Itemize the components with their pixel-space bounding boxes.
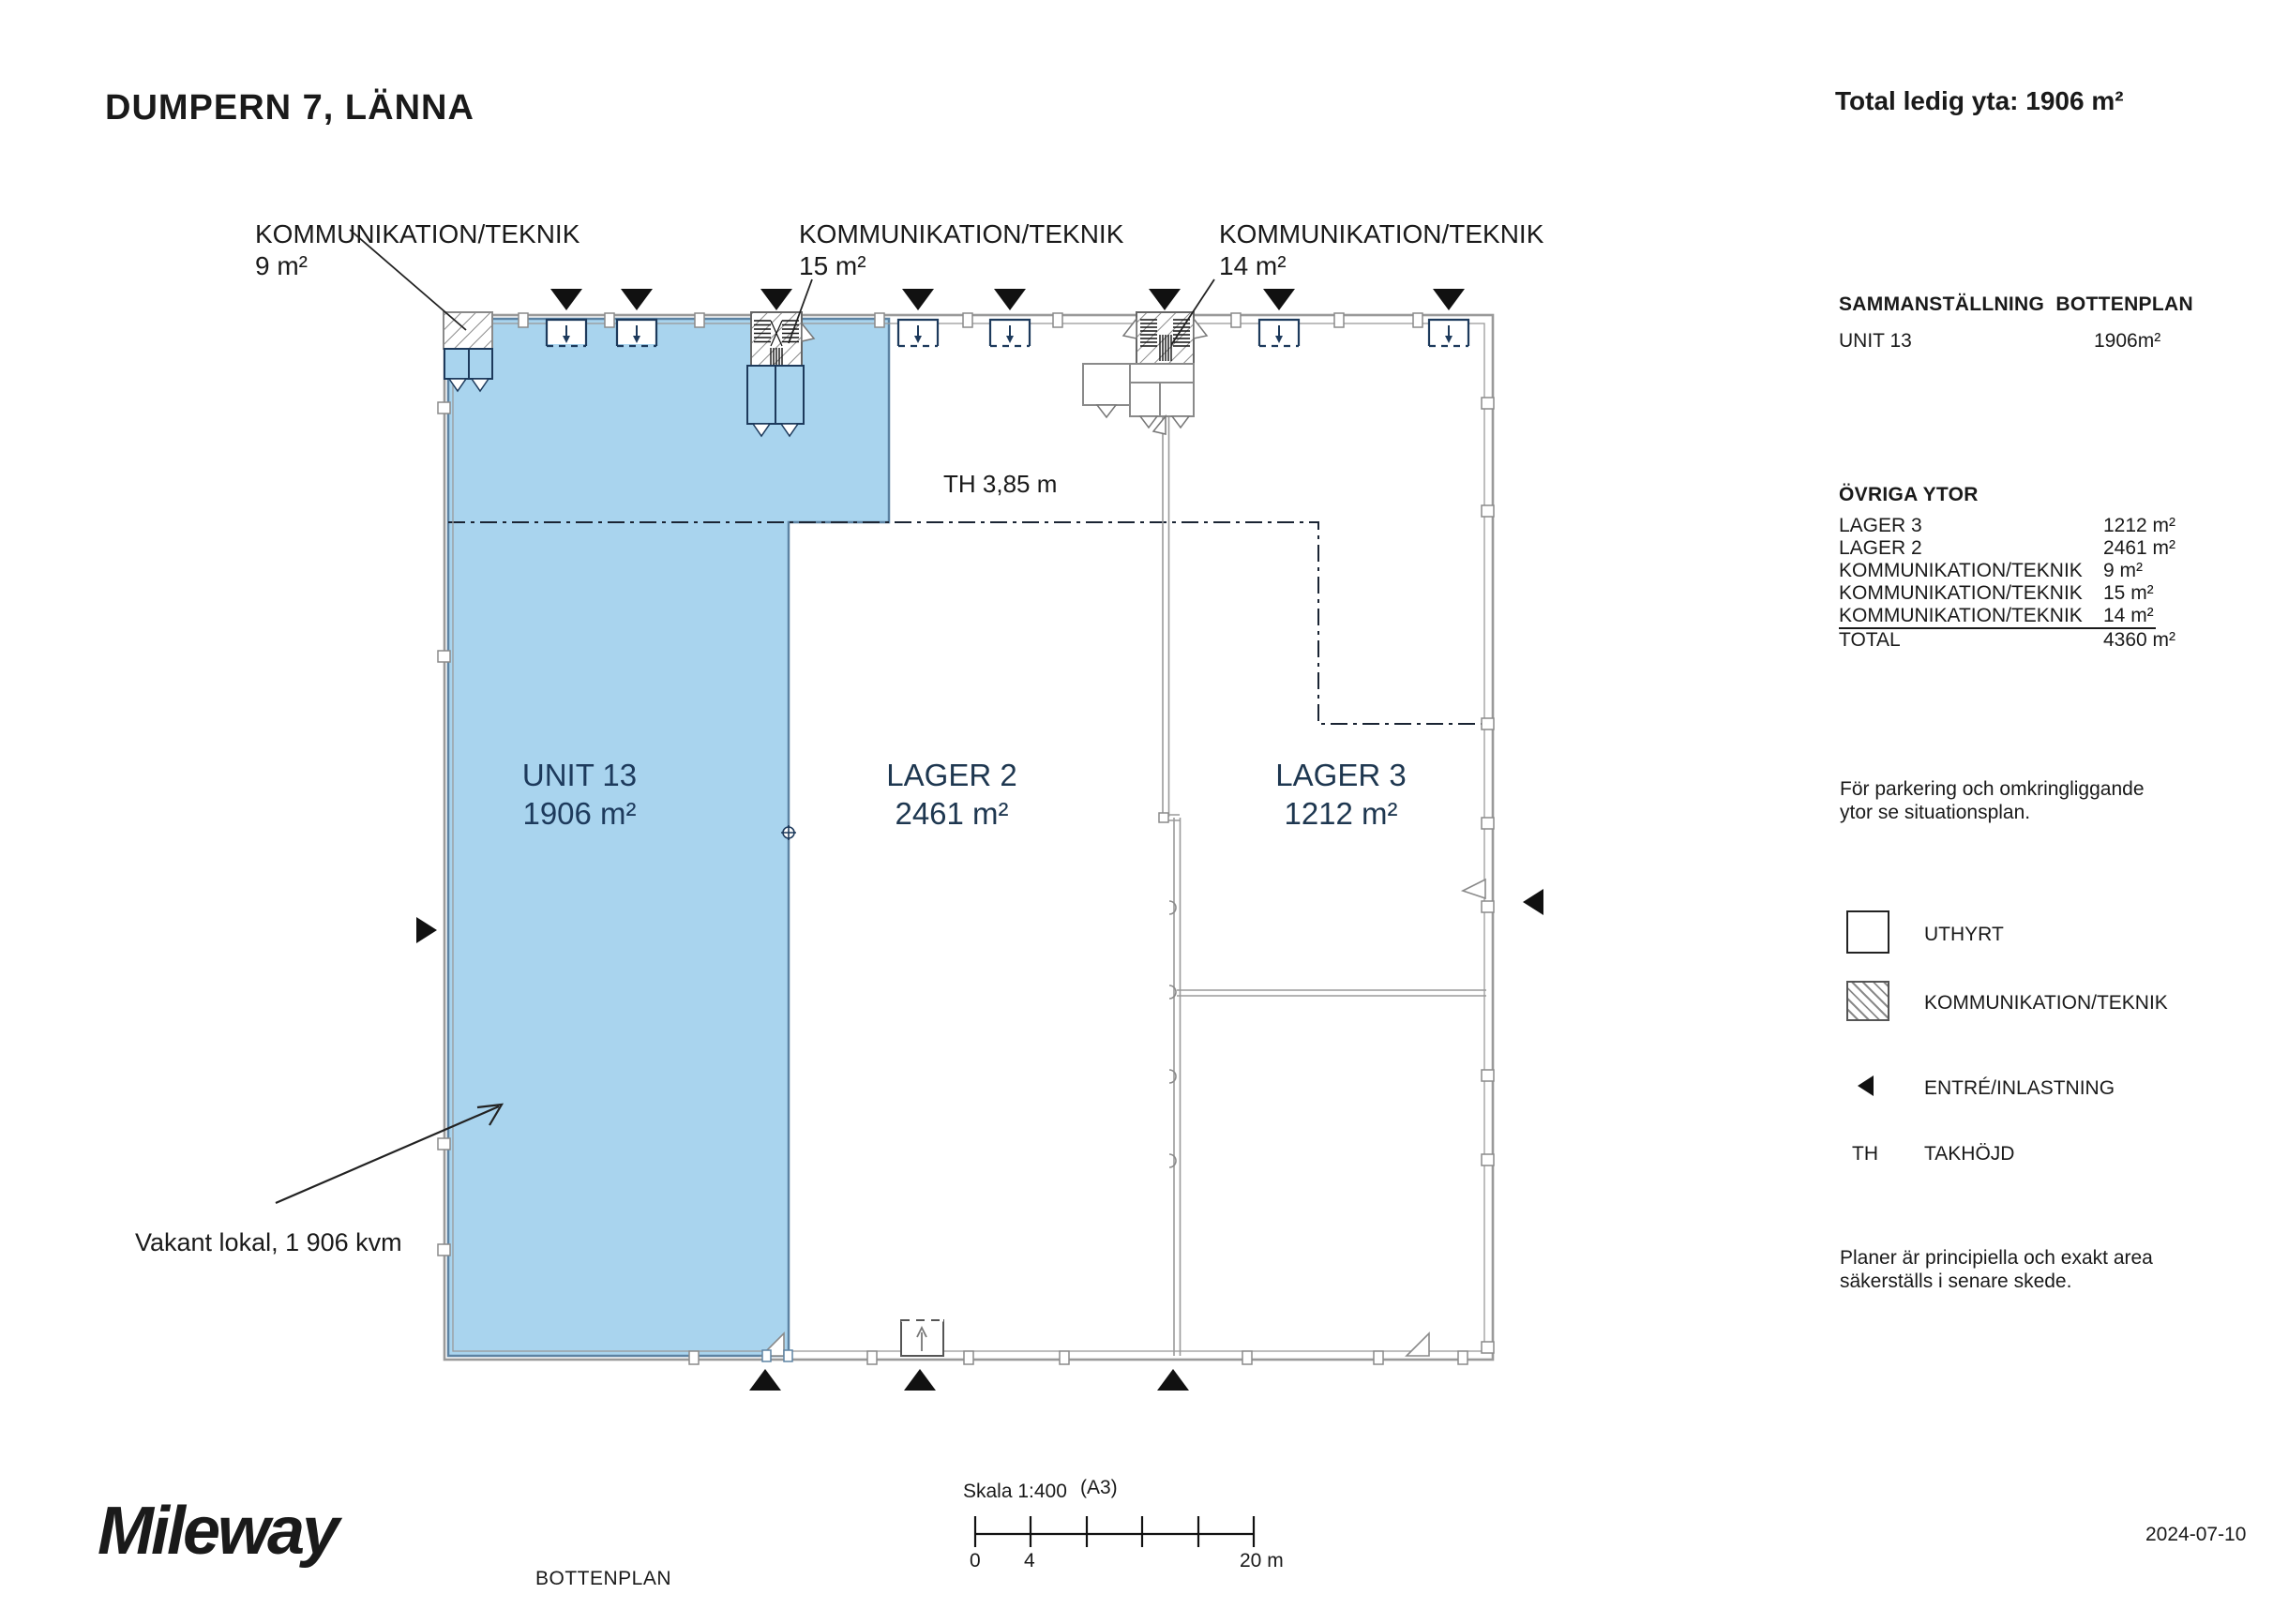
scale-tick-20: 20 m bbox=[1240, 1550, 1284, 1572]
annotation-teknik-14: KOMMUNIKATION/TEKNIK 14 m² bbox=[1219, 218, 1543, 282]
row-label: KOMMUNIKATION/TEKNIK bbox=[1839, 560, 2083, 582]
row-label: KOMMUNIKATION/TEKNIK bbox=[1839, 605, 2083, 627]
row-value: 1212 m² bbox=[2103, 515, 2175, 537]
scale-tick-4: 4 bbox=[1024, 1550, 1035, 1572]
mileway-logo: Mileway bbox=[98, 1493, 337, 1570]
lager2-area-text: 2461 m² bbox=[886, 794, 1016, 833]
row-value: 4360 m² bbox=[2103, 629, 2175, 652]
lager2-label: LAGER 2 2461 m² bbox=[886, 756, 1016, 833]
annotation-teknik-9-name: KOMMUNIKATION/TEKNIK bbox=[255, 218, 580, 250]
teknik-9m2-block bbox=[444, 312, 492, 391]
parking-note: För parkering och omkringliggande ytor s… bbox=[1840, 777, 2182, 824]
door-swings bbox=[761, 880, 1485, 1356]
annotation-teknik-15-area: 15 m² bbox=[799, 250, 1123, 282]
annotation-teknik-9: KOMMUNIKATION/TEKNIK 9 m² bbox=[255, 218, 580, 282]
annotation-teknik-15-name: KOMMUNIKATION/TEKNIK bbox=[799, 218, 1123, 250]
date-label: 2024-07-10 bbox=[2145, 1524, 2246, 1546]
lager-divider-wall bbox=[1163, 416, 1486, 1356]
legend-th-abbr: TH bbox=[1852, 1143, 1878, 1165]
legend-entre-label: ENTRÉ/INLASTNING bbox=[1924, 1077, 2115, 1100]
unit13-label: UNIT 13 1906 m² bbox=[522, 756, 637, 833]
row-label: LAGER 3 bbox=[1839, 515, 1922, 537]
annotation-teknik-9-area: 9 m² bbox=[255, 250, 580, 282]
legend-uthyrt-label: UTHYRT bbox=[1924, 924, 2004, 946]
hinge-marks bbox=[1169, 901, 1176, 1167]
legend-takhojd-label: TAKHÖJD bbox=[1924, 1143, 2014, 1165]
row-value: 15 m² bbox=[2103, 582, 2154, 605]
unit13-name: UNIT 13 bbox=[522, 756, 637, 794]
scale-label: Skala 1:400 bbox=[963, 1481, 1067, 1503]
row-label: KOMMUNIKATION/TEKNIK bbox=[1839, 582, 2083, 605]
bottom-door-notch bbox=[901, 1320, 943, 1356]
page-title: DUMPERN 7, LÄNNA bbox=[105, 88, 474, 128]
table-row: KOMMUNIKATION/TEKNIK 9 m² bbox=[1839, 560, 2156, 582]
vacant-note: Vakant lokal, 1 906 kvm bbox=[135, 1228, 402, 1257]
legend-uthyrt-swatch bbox=[1846, 910, 1889, 954]
scale-bar bbox=[975, 1516, 1254, 1547]
table-row: LAGER 3 1212 m² bbox=[1839, 515, 2156, 537]
unit13-area-text: 1906 m² bbox=[522, 794, 637, 833]
summary-row-label: UNIT 13 bbox=[1839, 330, 1912, 353]
lager3-name: LAGER 3 bbox=[1275, 756, 1406, 794]
annotation-teknik-14-name: KOMMUNIKATION/TEKNIK bbox=[1219, 218, 1543, 250]
lager2-name: LAGER 2 bbox=[886, 756, 1016, 794]
annotation-teknik-15: KOMMUNIKATION/TEKNIK 15 m² bbox=[799, 218, 1123, 282]
floorplan-page: DUMPERN 7, LÄNNA Total ledig yta: 1906 m… bbox=[0, 0, 2288, 1624]
legend-kommunikation-swatch bbox=[1846, 981, 1889, 1021]
table-row-total: TOTAL 4360 m² bbox=[1839, 629, 2156, 652]
disclaimer-note: Planer är principiella och exakt area sä… bbox=[1840, 1246, 2205, 1293]
table-row: KOMMUNIKATION/TEKNIK 15 m² bbox=[1839, 582, 2156, 605]
plan-name: BOTTENPLAN bbox=[535, 1568, 671, 1590]
scale-tick-0: 0 bbox=[970, 1550, 981, 1572]
row-value: 14 m² bbox=[2103, 605, 2154, 627]
ovriga-heading: ÖVRIGA YTOR bbox=[1839, 484, 1979, 506]
table-row: LAGER 2 2461 m² bbox=[1839, 537, 2156, 560]
total-area-heading: Total ledig yta: 1906 m² bbox=[1835, 86, 2124, 116]
teknik-15m2-block bbox=[747, 312, 814, 436]
summary-row-value: 1906m² bbox=[2094, 330, 2160, 353]
lager3-area-text: 1212 m² bbox=[1275, 794, 1406, 833]
row-label: TOTAL bbox=[1839, 629, 1901, 652]
teknik-14m2-block bbox=[1083, 312, 1207, 434]
summary-heading: SAMMANSTÄLLNING BOTTENPLAN bbox=[1839, 293, 2193, 316]
annotation-teknik-14-area: 14 m² bbox=[1219, 250, 1543, 282]
legend-entry-arrow-icon bbox=[1858, 1075, 1874, 1096]
unit13-area bbox=[448, 319, 889, 1356]
legend-kommunikation-label: KOMMUNIKATION/TEKNIK bbox=[1924, 992, 2168, 1015]
table-row: KOMMUNIKATION/TEKNIK 14 m² bbox=[1839, 605, 2156, 629]
ceiling-height-label: TH 3,85 m bbox=[943, 470, 1057, 499]
paper-size-label: (A3) bbox=[1080, 1477, 1118, 1499]
row-label: LAGER 2 bbox=[1839, 537, 1922, 560]
row-value: 2461 m² bbox=[2103, 537, 2175, 560]
row-value: 9 m² bbox=[2103, 560, 2143, 582]
summary-row: UNIT 13 1906m² bbox=[1839, 330, 2156, 353]
lager3-label: LAGER 3 1212 m² bbox=[1275, 756, 1406, 833]
